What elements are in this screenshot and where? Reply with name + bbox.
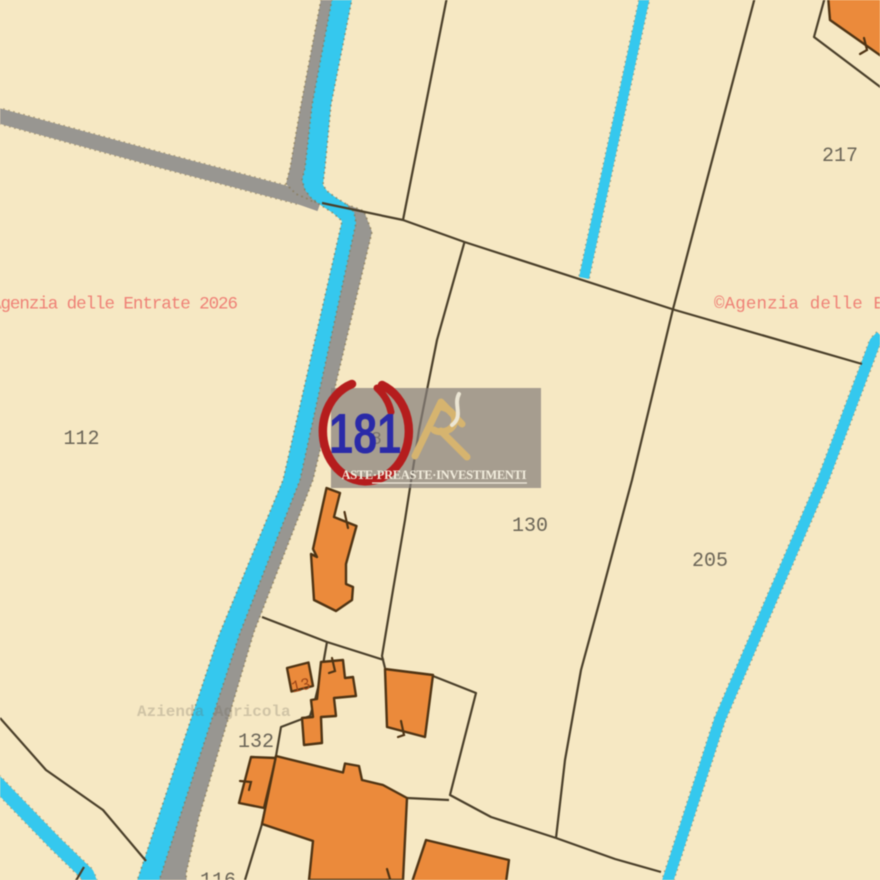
svg-text:205: 205 [692, 550, 728, 573]
svg-text:217: 217 [822, 145, 858, 168]
svg-text:©Agenzia delle E: ©Agenzia delle E [714, 295, 880, 315]
svg-text:181: 181 [329, 401, 401, 465]
svg-text:112: 112 [64, 428, 100, 451]
svg-text:Azienda Agricola: Azienda Agricola [137, 703, 291, 721]
svg-text:ASTE·PREASTE·INVESTIMENTI: ASTE·PREASTE·INVESTIMENTI [342, 468, 528, 482]
svg-text:130: 130 [512, 515, 548, 538]
svg-text:Agenzia delle Entrate 2026: Agenzia delle Entrate 2026 [0, 295, 238, 315]
svg-text:132: 132 [238, 731, 274, 754]
svg-text:116: 116 [200, 870, 236, 880]
